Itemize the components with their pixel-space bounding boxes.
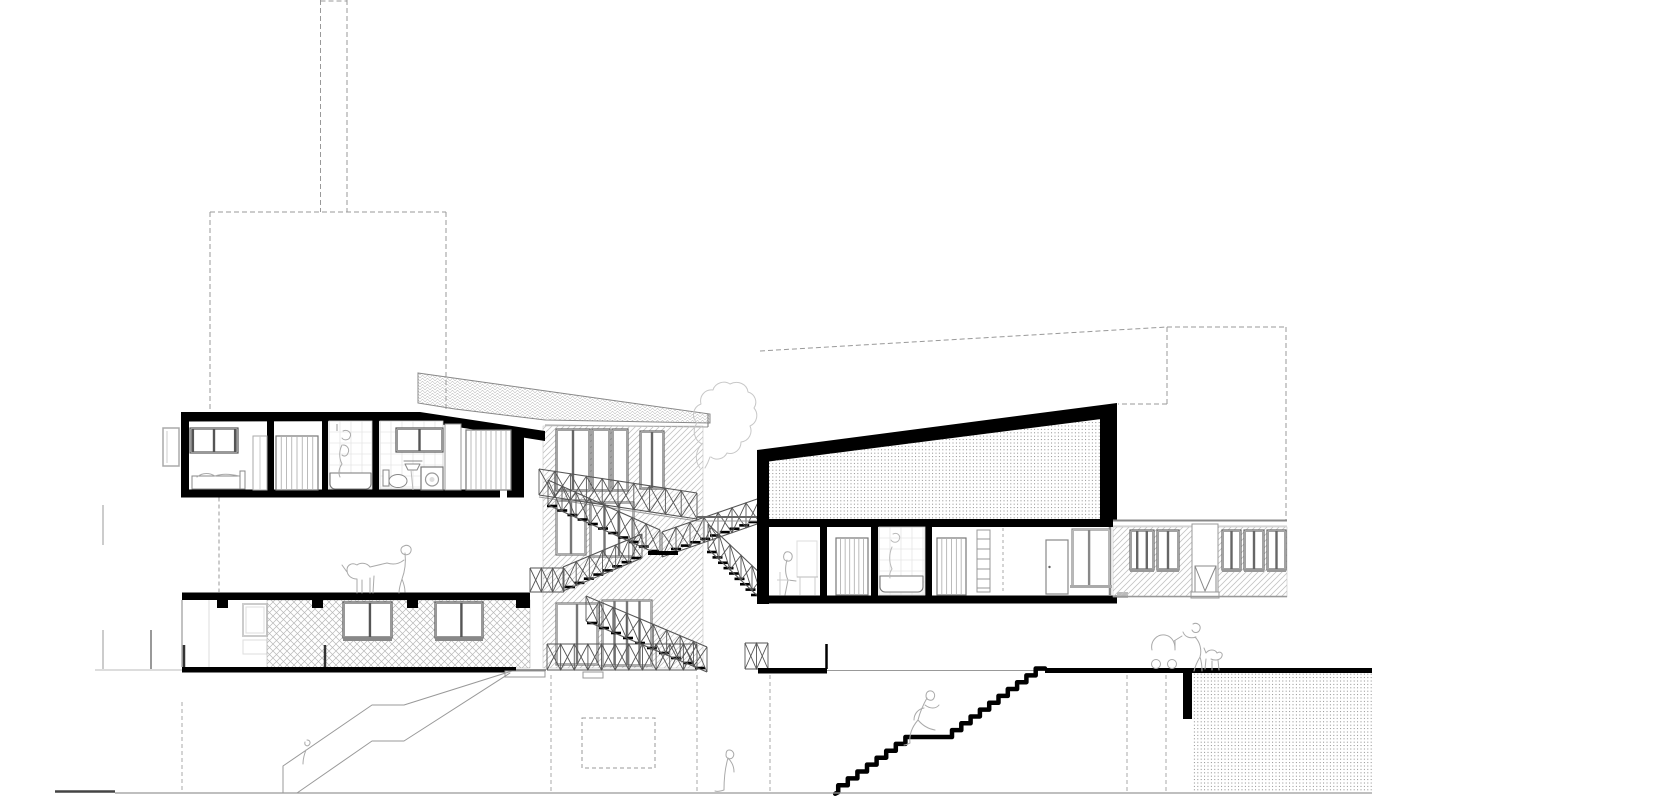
mid-window-u2	[592, 429, 610, 491]
bed-headboard	[240, 471, 245, 489]
right-ceiling-slab	[757, 519, 1113, 527]
left-wall-int-2	[322, 418, 328, 490]
right-wall-int-3	[925, 527, 932, 596]
paper-background	[0, 0, 1680, 800]
left-wall-int-3	[372, 418, 379, 490]
drawing-canvas	[0, 0, 1680, 800]
left-wall-west	[181, 412, 189, 498]
left-wall-int-1	[267, 418, 274, 490]
lower-left-window-2	[435, 602, 483, 638]
bath1-tub	[330, 473, 371, 489]
toilet-tank	[383, 470, 389, 486]
wing-window-1	[1130, 530, 1154, 570]
upper-ground-slab	[1045, 668, 1372, 673]
right-wall-int-2	[871, 527, 878, 596]
right-back-window	[1072, 529, 1110, 587]
right-back-door-knob	[1048, 566, 1050, 568]
lower-left-window-2-sill	[435, 637, 483, 641]
toilet-bowl	[389, 475, 407, 488]
terrace-ledge-2	[583, 672, 603, 678]
lower-left-hatch-band	[267, 600, 530, 668]
middle-slab-tab-3	[407, 600, 418, 608]
east-striped-door	[466, 430, 511, 490]
middle-slab-tab-2	[312, 600, 323, 608]
wing-window-2-sill	[1157, 569, 1179, 572]
terrace-slab	[182, 667, 516, 673]
lower-left-light-window	[243, 604, 267, 636]
wing-window-1-sill	[1130, 569, 1154, 572]
wing-window-4-sill	[1244, 569, 1264, 572]
retaining-bar	[1183, 673, 1192, 719]
right-gable-wall	[1100, 404, 1117, 521]
lower-left-window-1-sill	[343, 637, 392, 641]
right-back-window-sill	[1070, 585, 1112, 588]
bed	[192, 476, 244, 489]
middle-slab	[182, 593, 530, 601]
platform-slab	[758, 668, 827, 674]
right-bath-tub	[880, 576, 923, 592]
terrace-ledge-1	[505, 671, 545, 677]
section-drawing	[0, 0, 1680, 800]
middle-slab-tab-1	[217, 600, 228, 608]
balcony-door-leaf	[163, 428, 179, 466]
right-floor-slab	[757, 596, 1117, 604]
left-floor-slab	[181, 490, 500, 498]
middle-slab-tab-4	[516, 600, 530, 608]
lower-left-window-1	[343, 602, 392, 638]
wing-gate	[1195, 566, 1216, 592]
left-pillar	[445, 424, 461, 490]
washer-door-inner	[430, 477, 435, 482]
stair-landing	[648, 551, 678, 555]
wing-window-5-sill	[1267, 569, 1286, 572]
ground-dots-fill	[1192, 673, 1372, 793]
wing-window-3-sill	[1222, 569, 1241, 572]
right-wall-int-1	[820, 527, 827, 596]
